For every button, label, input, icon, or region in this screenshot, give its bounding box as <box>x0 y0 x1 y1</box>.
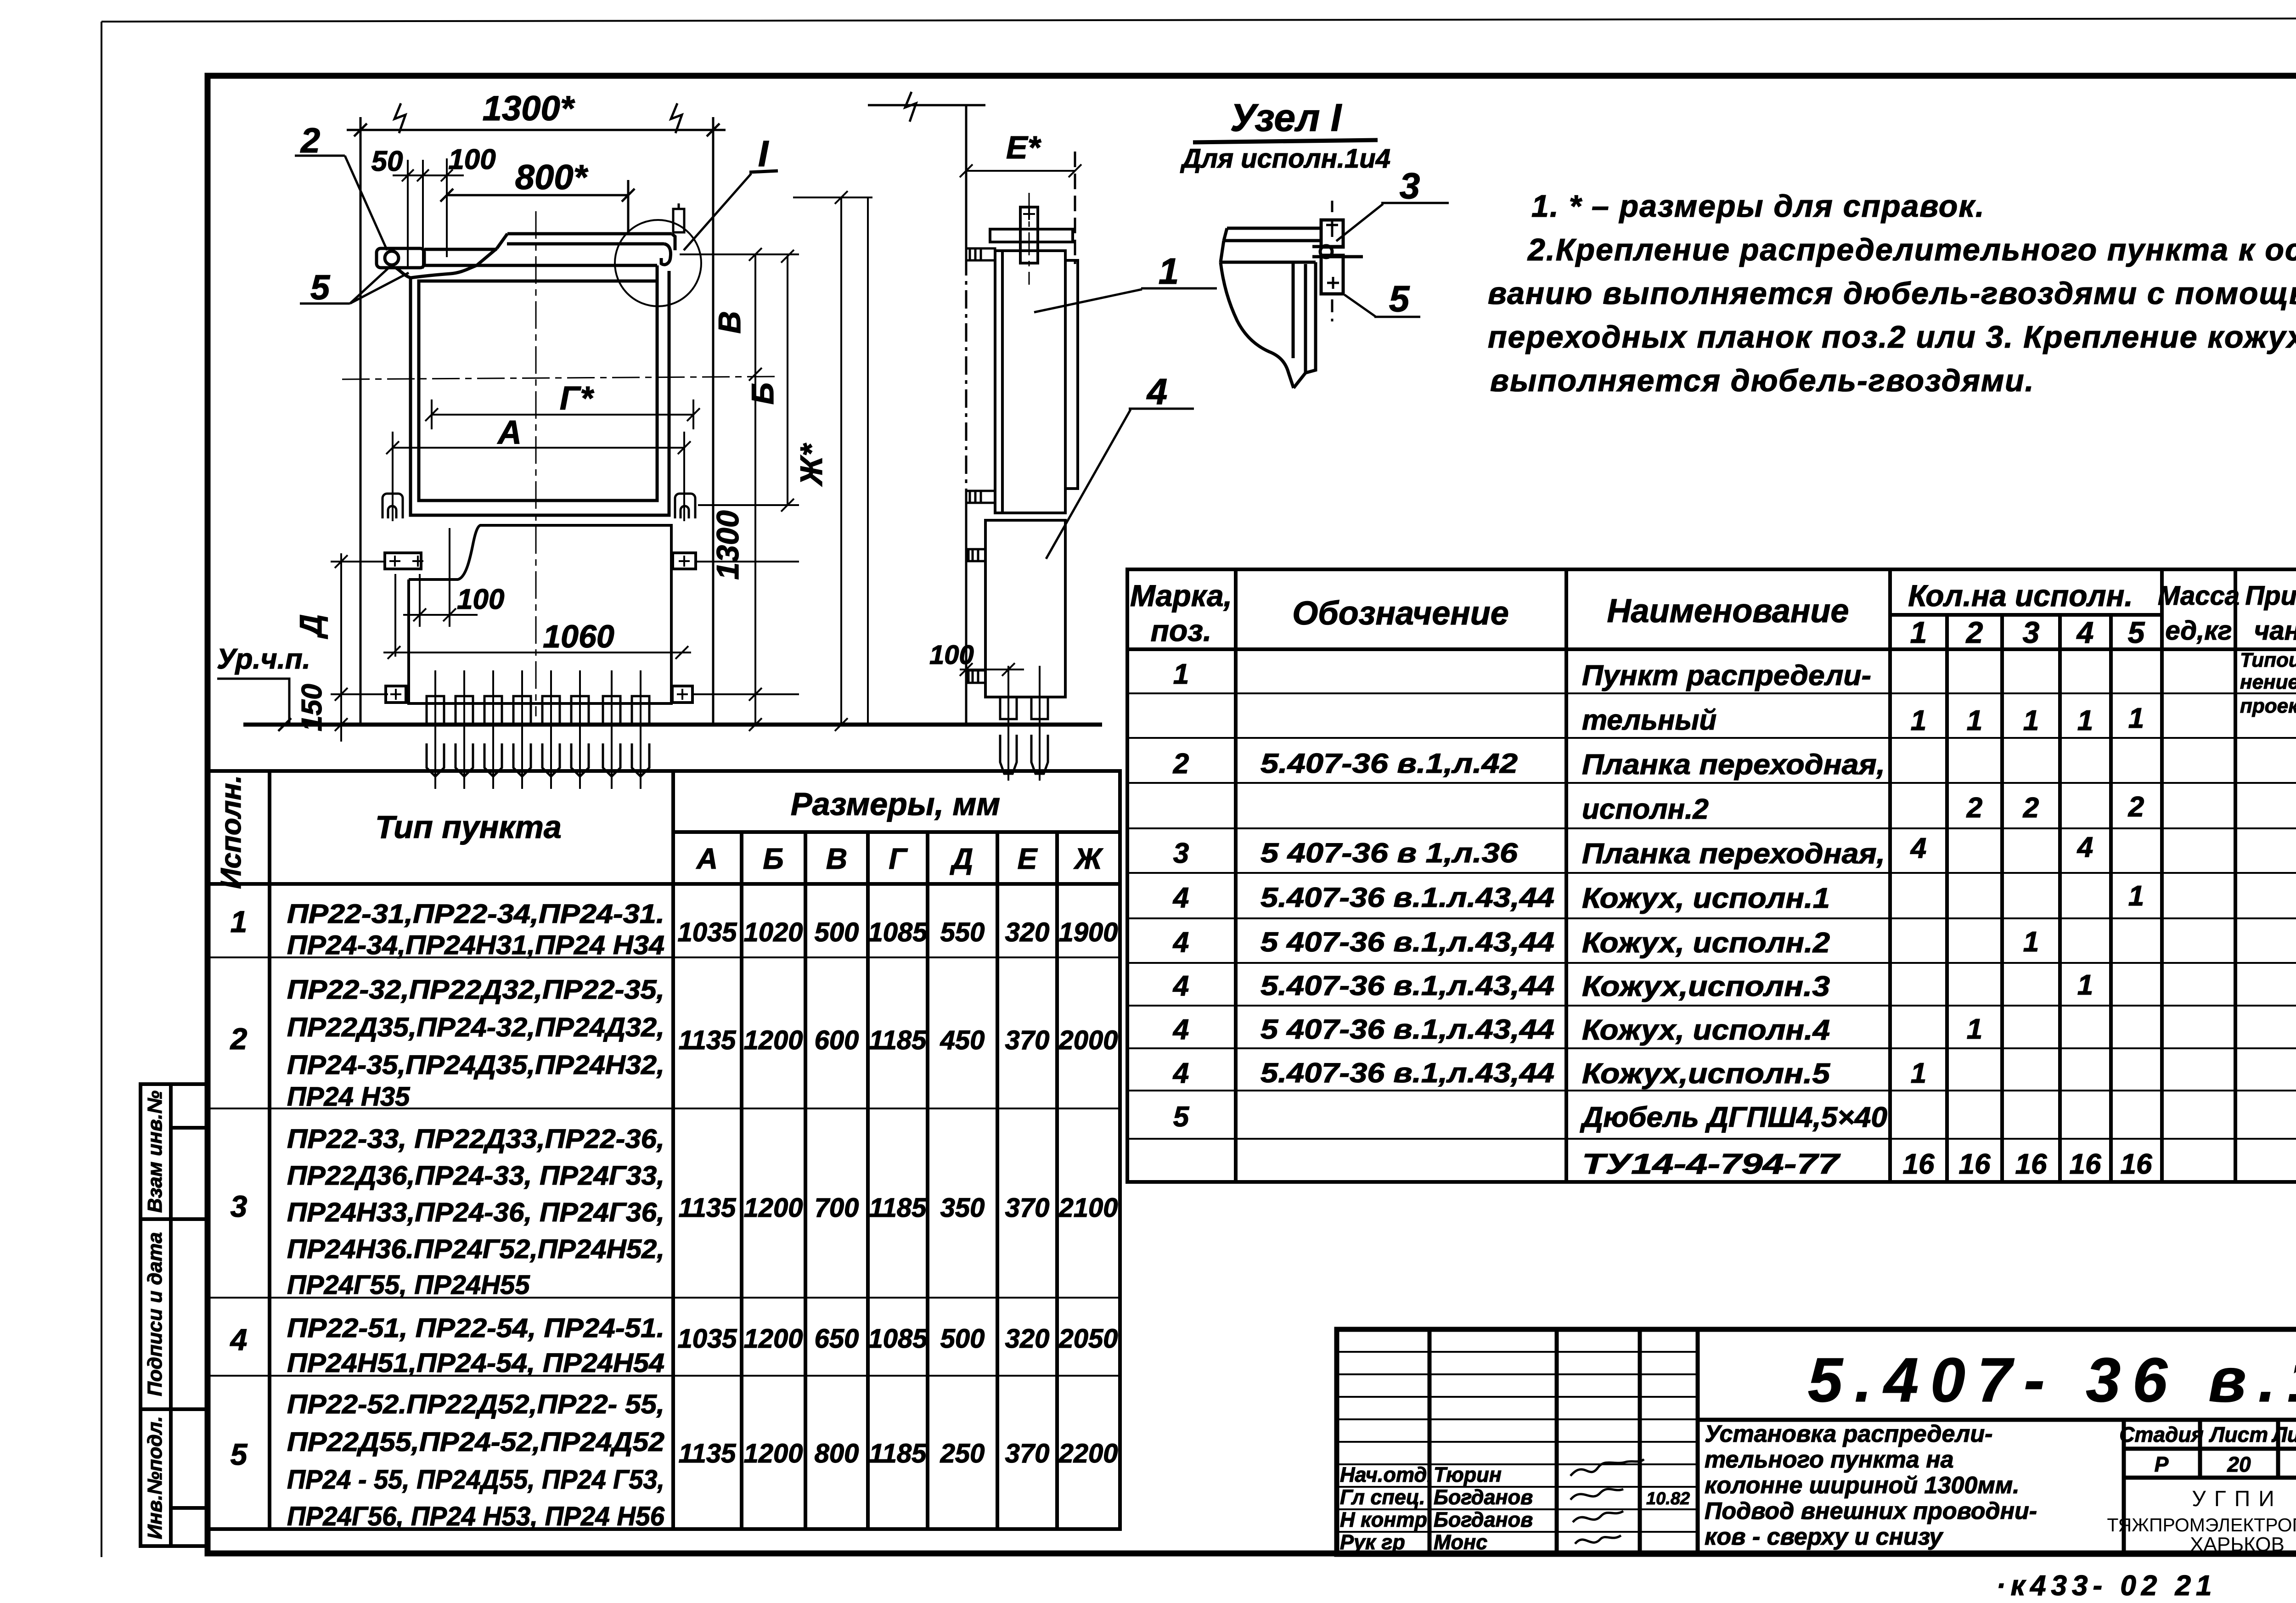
svg-text:370: 370 <box>1005 1025 1050 1055</box>
svg-text:Кожух, исполн.2: Кожух, исполн.2 <box>1582 927 1830 959</box>
svg-text:Планка переходная,: Планка переходная, <box>1582 838 1885 870</box>
svg-text:4: 4 <box>1172 927 1189 958</box>
svg-text:В: В <box>712 311 747 333</box>
svg-text:Подвод внешних проводни-: Подвод внешних проводни- <box>1705 1498 2037 1524</box>
svg-text:Н контр: Н контр <box>1340 1508 1427 1531</box>
svg-text:1135: 1135 <box>679 1193 736 1223</box>
svg-text:2.Крепление распределительного: 2.Крепление распределительного пункта к … <box>1527 232 2296 267</box>
svg-text:1: 1 <box>2023 705 2039 737</box>
svg-text:Приме-: Приме- <box>2245 581 2296 611</box>
svg-text:1: 1 <box>1967 1013 1982 1045</box>
svg-text:А: А <box>696 842 718 875</box>
svg-text:Г*: Г* <box>560 380 594 417</box>
svg-text:1: 1 <box>2023 926 2039 958</box>
svg-text:ПР24Н33,ПР24-36, ПР24Г36,: ПР24Н33,ПР24-36, ПР24Г36, <box>287 1198 664 1227</box>
svg-text:16: 16 <box>1903 1148 1935 1180</box>
svg-text:ПР24-35,ПР24Д35,ПР24Н32,: ПР24-35,ПР24Д35,ПР24Н32, <box>287 1050 664 1080</box>
svg-text:А: А <box>497 414 522 451</box>
svg-text:1: 1 <box>2077 969 2093 1001</box>
svg-text:5: 5 <box>1389 278 1410 319</box>
svg-text:УГПИ: УГПИ <box>2192 1487 2282 1511</box>
svg-text:2100: 2100 <box>1058 1193 1118 1223</box>
svg-text:5.407-36 в.1,л.43,44: 5.407-36 в.1,л.43,44 <box>1261 970 1554 1001</box>
svg-text:1: 1 <box>2128 880 2144 912</box>
svg-text:4: 4 <box>1910 832 1926 864</box>
svg-text:650: 650 <box>815 1324 859 1354</box>
svg-text:ков - сверху и снизу: ков - сверху и снизу <box>1705 1524 1944 1550</box>
svg-text:1: 1 <box>1910 615 1927 649</box>
svg-text:1900: 1900 <box>1058 917 1118 947</box>
svg-text:4: 4 <box>2076 615 2094 649</box>
svg-text:Рук гр: Рук гр <box>1340 1530 1405 1554</box>
svg-text:Подписи и дата: Подписи и дата <box>144 1232 166 1396</box>
svg-text:Б: Б <box>763 842 783 875</box>
svg-text:600: 600 <box>815 1025 859 1055</box>
svg-text:5: 5 <box>310 268 331 307</box>
svg-text:4: 4 <box>1172 970 1189 1002</box>
svg-text:16: 16 <box>1959 1148 1991 1180</box>
svg-text:переходных планок поз.2 или 3.: переходных планок поз.2 или 3. Крепление… <box>1488 320 2296 354</box>
svg-text:370: 370 <box>1005 1439 1050 1468</box>
svg-text:ХАРЬКОВ: ХАРЬКОВ <box>2190 1533 2285 1556</box>
svg-text:Кожух, исполн.4: Кожух, исполн.4 <box>1582 1014 1830 1046</box>
svg-text:Г: Г <box>889 842 908 875</box>
svg-text:выполняется дюбель-гвоздями.: выполняется дюбель-гвоздями. <box>1490 363 2035 398</box>
svg-text:100: 100 <box>448 144 495 175</box>
svg-text:5: 5 <box>1173 1101 1190 1133</box>
svg-text:Лист: Лист <box>2209 1423 2268 1446</box>
svg-text:Пункт распредели-: Пункт распредели- <box>1582 660 1871 692</box>
svg-text:550: 550 <box>940 917 985 947</box>
svg-text:Размеры, мм: Размеры, мм <box>791 786 1000 822</box>
svg-text:Ур.ч.п.: Ур.ч.п. <box>217 643 310 675</box>
svg-text:ПР24Н51,ПР24-54, ПР24Н54: ПР24Н51,ПР24-54, ПР24Н54 <box>287 1348 664 1378</box>
svg-text:Нач.отд.: Нач.отд. <box>1340 1463 1433 1486</box>
svg-text:2: 2 <box>230 1022 248 1056</box>
svg-text:1: 1 <box>2128 703 2144 734</box>
svg-text:2000: 2000 <box>1058 1025 1118 1055</box>
svg-text:1300*: 1300* <box>483 89 575 128</box>
svg-text:800: 800 <box>815 1439 859 1468</box>
svg-text:Р: Р <box>2155 1452 2169 1476</box>
svg-text:5.407- 36 в.1: 5.407- 36 в.1 <box>1808 1345 2296 1415</box>
svg-text:5 407-36 в.1,л.43,44: 5 407-36 в.1,л.43,44 <box>1261 1014 1554 1045</box>
svg-text:2: 2 <box>1173 748 1189 780</box>
svg-text:Богданов: Богданов <box>1434 1508 1533 1531</box>
svg-text:4: 4 <box>1146 371 1168 412</box>
svg-text:100: 100 <box>929 640 974 670</box>
svg-text:4: 4 <box>230 1322 248 1356</box>
svg-text:1: 1 <box>1967 705 1982 737</box>
svg-text:Кожух, исполн.1: Кожух, исполн.1 <box>1582 883 1830 914</box>
svg-text:1: 1 <box>1159 251 1179 292</box>
svg-text:Гл спец.: Гл спец. <box>1340 1485 1425 1509</box>
svg-text:10.82: 10.82 <box>1646 1489 1690 1508</box>
svg-text:Б: Б <box>745 382 780 405</box>
svg-text:5: 5 <box>231 1437 248 1471</box>
svg-text:ПР24Г56, ПР24 Н53, ПР24 Н56: ПР24Г56, ПР24 Н53, ПР24 Н56 <box>287 1502 665 1531</box>
svg-text:Обозначение: Обозначение <box>1292 595 1509 632</box>
svg-text:1: 1 <box>231 905 248 939</box>
svg-text:16: 16 <box>2121 1148 2152 1180</box>
svg-text:2: 2 <box>1965 615 1983 649</box>
svg-text:4: 4 <box>2077 832 2093 863</box>
svg-text:1185: 1185 <box>869 1025 927 1055</box>
svg-text:4: 4 <box>1172 1014 1189 1046</box>
svg-text:250: 250 <box>940 1439 985 1468</box>
svg-text:3: 3 <box>2023 615 2040 649</box>
svg-text:проекту: проекту <box>2240 695 2296 717</box>
svg-text:1020: 1020 <box>743 917 803 947</box>
svg-text:Ж: Ж <box>1073 842 1103 875</box>
svg-text:370: 370 <box>1005 1193 1050 1223</box>
svg-text:20: 20 <box>2227 1452 2251 1476</box>
svg-text:1185: 1185 <box>869 1439 927 1468</box>
svg-text:ПР22Д36,ПР24-33, ПР24Г33,: ПР22Д36,ПР24-33, ПР24Г33, <box>287 1161 664 1191</box>
svg-text:поз.: поз. <box>1151 613 1212 647</box>
svg-text:Е: Е <box>1018 842 1038 875</box>
svg-text:350: 350 <box>940 1193 985 1223</box>
svg-text:1: 1 <box>1173 658 1189 690</box>
svg-text:1035: 1035 <box>677 917 737 947</box>
svg-text:1085: 1085 <box>868 1324 928 1354</box>
svg-text:Для исполн.1и4: Для исполн.1и4 <box>1180 144 1390 174</box>
svg-text:Кол.на исполн.: Кол.на исполн. <box>1908 579 2133 613</box>
svg-text:500: 500 <box>815 917 859 947</box>
svg-text:Тип пункта: Тип пункта <box>375 809 562 845</box>
svg-text:тельного пункта на: тельного пункта на <box>1705 1446 1954 1473</box>
svg-text:ПР22-33, ПР22Д33,ПР22-36,: ПР22-33, ПР22Д33,ПР22-36, <box>287 1124 664 1154</box>
svg-text:нение по: нение по <box>2240 671 2296 693</box>
svg-text:Инв.№подл.: Инв.№подл. <box>144 1416 166 1539</box>
svg-text:3: 3 <box>1173 838 1189 869</box>
svg-text:тельный: тельный <box>1582 704 1716 736</box>
svg-text:320: 320 <box>1005 917 1050 947</box>
svg-text:Установка распредели-: Установка распредели- <box>1705 1421 1992 1447</box>
svg-text:1135: 1135 <box>679 1025 736 1055</box>
svg-text:5 407-36 в 1,л.36: 5 407-36 в 1,л.36 <box>1261 838 1518 868</box>
svg-text:2: 2 <box>300 121 320 160</box>
svg-text:I: I <box>758 133 769 174</box>
svg-text:1200: 1200 <box>743 1193 803 1223</box>
svg-text:1: 1 <box>1911 705 1926 737</box>
svg-text:1200: 1200 <box>743 1025 803 1055</box>
svg-text:500: 500 <box>940 1324 985 1354</box>
svg-text:Стадия: Стадия <box>2119 1423 2203 1446</box>
svg-text:1300: 1300 <box>710 510 745 579</box>
svg-text:Д: Д <box>293 614 328 639</box>
svg-text:16: 16 <box>2070 1148 2101 1180</box>
svg-text:1200: 1200 <box>743 1324 803 1354</box>
svg-text:В: В <box>826 842 847 875</box>
svg-text:ПР24 Н35: ПР24 Н35 <box>287 1082 410 1112</box>
svg-text:4: 4 <box>1172 1057 1189 1089</box>
svg-text:5.407-36 в.1,л.43,44: 5.407-36 в.1,л.43,44 <box>1261 1057 1554 1088</box>
svg-text:1060: 1060 <box>543 619 614 654</box>
svg-text:ПР24Г55, ПР24Н55: ПР24Г55, ПР24Н55 <box>287 1270 530 1300</box>
svg-text:ед,кг: ед,кг <box>2165 616 2232 646</box>
svg-text:5 407-36 в.1,л.43,44: 5 407-36 в.1,л.43,44 <box>1261 927 1554 957</box>
svg-text:ПР24 - 55, ПР24Д55, ПР24 Г53,: ПР24 - 55, ПР24Д55, ПР24 Г53, <box>287 1465 664 1495</box>
svg-text:2: 2 <box>2128 791 2144 823</box>
svg-text:2200: 2200 <box>1058 1439 1118 1468</box>
svg-text:2050: 2050 <box>1058 1324 1118 1354</box>
svg-text:Д: Д <box>950 842 973 875</box>
svg-text:Наименование: Наименование <box>1607 593 1849 630</box>
svg-text:ПР22-52.ПР22Д52,ПР22- 55,: ПР22-52.ПР22Д52,ПР22- 55, <box>287 1389 664 1419</box>
svg-text:3: 3 <box>1400 165 1420 206</box>
svg-text:Исполн.: Исполн. <box>215 775 247 889</box>
svg-text:Е*: Е* <box>1006 129 1041 165</box>
svg-text:1185: 1185 <box>869 1193 927 1223</box>
svg-text:4: 4 <box>1172 882 1189 914</box>
svg-text:ПР22Д55,ПР24-52,ПР24Д52: ПР22Д55,ПР24-52,ПР24Д52 <box>287 1427 664 1457</box>
svg-text:1085: 1085 <box>868 917 928 947</box>
svg-text:450: 450 <box>940 1025 985 1055</box>
svg-text:Дюбель ДГПШ4,5×40: Дюбель ДГПШ4,5×40 <box>1580 1102 1887 1133</box>
svg-text:Марка,: Марка, <box>1130 579 1232 613</box>
svg-text:Кожух,исполн.3: Кожух,исполн.3 <box>1582 971 1830 1002</box>
svg-text:Узел I: Узел I <box>1230 96 1342 139</box>
svg-text:2: 2 <box>2023 792 2039 824</box>
svg-text:ТУ14-4-794-77: ТУ14-4-794-77 <box>1582 1148 1840 1180</box>
svg-text:5.407-36 в.1.л.43,44: 5.407-36 в.1.л.43,44 <box>1261 882 1554 913</box>
svg-text:800*: 800* <box>515 158 589 197</box>
svg-text:чание: чание <box>2254 616 2296 646</box>
svg-text:Ж*: Ж* <box>794 443 829 487</box>
svg-text:Монс: Монс <box>1434 1530 1487 1554</box>
svg-text:320: 320 <box>1005 1324 1050 1354</box>
svg-text:1200: 1200 <box>743 1439 803 1468</box>
svg-text:Планка переходная,: Планка переходная, <box>1582 749 1885 781</box>
svg-text:колонне шириной 1300мм.: колонне шириной 1300мм. <box>1705 1472 2020 1499</box>
svg-text:Листов: Листов <box>2271 1423 2296 1446</box>
svg-text:ПР24-34,ПР24Н31,ПР24 Н34: ПР24-34,ПР24Н31,ПР24 Н34 <box>287 930 664 960</box>
svg-text:Тюрин: Тюрин <box>1434 1463 1502 1486</box>
svg-text:ПР22Д35,ПР24-32,ПР24Д32,: ПР22Д35,ПР24-32,ПР24Д32, <box>287 1012 664 1042</box>
svg-text:3: 3 <box>231 1189 248 1223</box>
svg-text:·к433- 02 21: ·к433- 02 21 <box>1996 1570 2217 1602</box>
svg-text:Богданов: Богданов <box>1434 1485 1533 1509</box>
svg-text:ванию выполняется дюбель-гвозд: ванию выполняется дюбель-гвоздями с помо… <box>1488 276 2296 311</box>
svg-text:50: 50 <box>371 146 403 177</box>
svg-text:Взам инв.№: Взам инв.№ <box>144 1091 166 1213</box>
svg-text:Масса: Масса <box>2158 581 2240 611</box>
svg-text:5.407-36 в.1,л.42: 5.407-36 в.1,л.42 <box>1261 748 1518 779</box>
svg-text:Типоиспол: Типоиспол <box>2240 649 2296 671</box>
svg-text:100: 100 <box>457 584 504 615</box>
svg-text:ПР22-51, ПР22-54, ПР24-51.: ПР22-51, ПР22-54, ПР24-51. <box>287 1313 664 1343</box>
svg-text:700: 700 <box>815 1193 859 1223</box>
svg-text:исполн.2: исполн.2 <box>1582 793 1709 825</box>
svg-text:Кожух,исполн.5: Кожух,исполн.5 <box>1582 1058 1831 1090</box>
svg-text:1: 1 <box>2077 705 2093 737</box>
svg-text:ПР22-32,ПР22Д32,ПР22-35,: ПР22-32,ПР22Д32,ПР22-35, <box>287 975 664 1005</box>
svg-text:16: 16 <box>2015 1148 2047 1180</box>
svg-text:ТЯЖПРОМЭЛЕКТРОПРОЕКТ: ТЯЖПРОМЭЛЕКТРОПРОЕКТ <box>2107 1514 2296 1536</box>
svg-text:ПР22-31,ПР22-34,ПР24-31.: ПР22-31,ПР22-34,ПР24-31. <box>287 899 664 929</box>
svg-text:5: 5 <box>2128 615 2145 649</box>
svg-text:1. * – размеры для справок.: 1. * – размеры для справок. <box>1531 189 1985 224</box>
svg-text:ПР24Н36.ПР24Г52,ПР24Н52,: ПР24Н36.ПР24Г52,ПР24Н52, <box>287 1234 664 1264</box>
svg-text:150: 150 <box>296 684 328 731</box>
svg-text:1135: 1135 <box>679 1439 736 1468</box>
svg-text:2: 2 <box>1966 792 1982 824</box>
svg-text:1035: 1035 <box>677 1324 737 1354</box>
svg-text:1: 1 <box>1911 1057 1926 1089</box>
